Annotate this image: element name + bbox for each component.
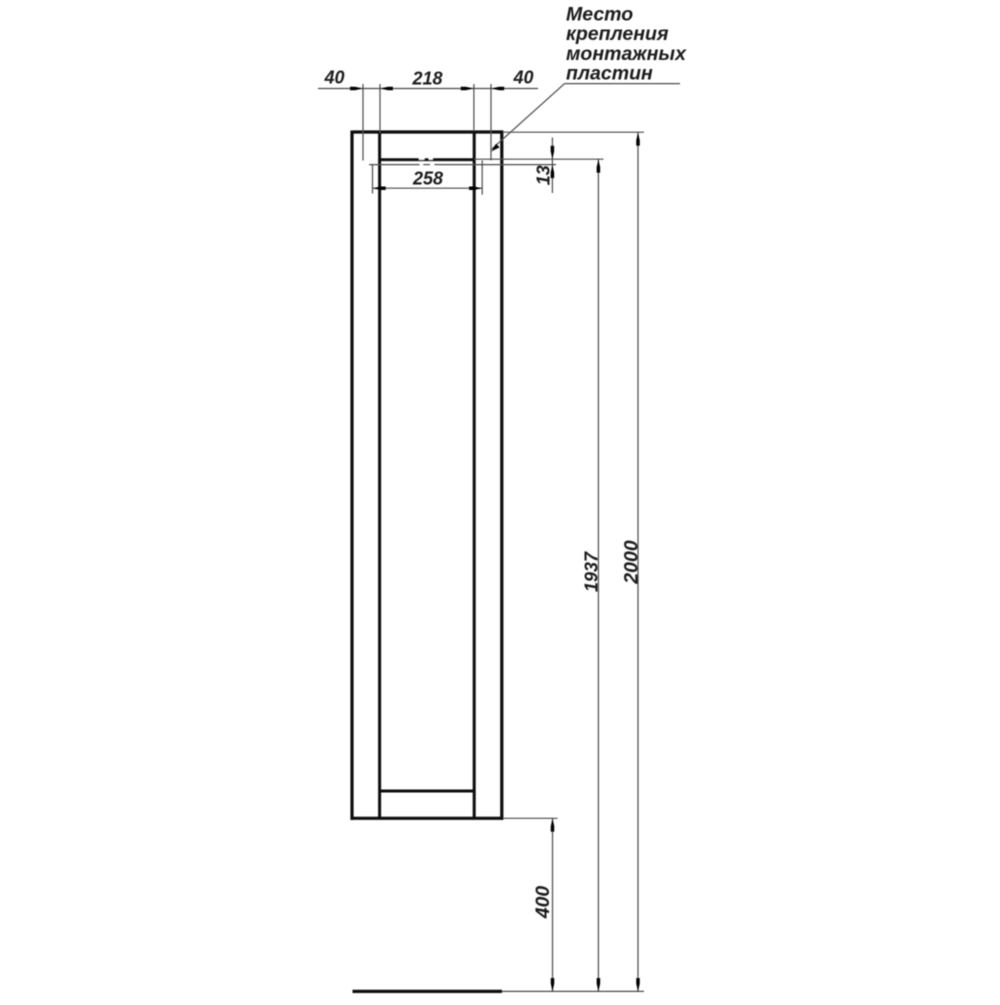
svg-text:40: 40 <box>323 68 344 88</box>
svg-text:218: 218 <box>411 68 442 88</box>
svg-text:258: 258 <box>412 169 443 189</box>
svg-text:Место: Место <box>566 3 633 25</box>
svg-text:13: 13 <box>534 165 554 185</box>
svg-text:2000: 2000 <box>621 540 643 585</box>
svg-text:пластин: пластин <box>566 63 653 85</box>
svg-text:монтажных: монтажных <box>566 43 687 65</box>
svg-text:1937: 1937 <box>581 551 601 592</box>
svg-text:400: 400 <box>532 886 554 920</box>
svg-text:крепления: крепления <box>566 23 669 45</box>
svg-text:40: 40 <box>512 67 533 87</box>
